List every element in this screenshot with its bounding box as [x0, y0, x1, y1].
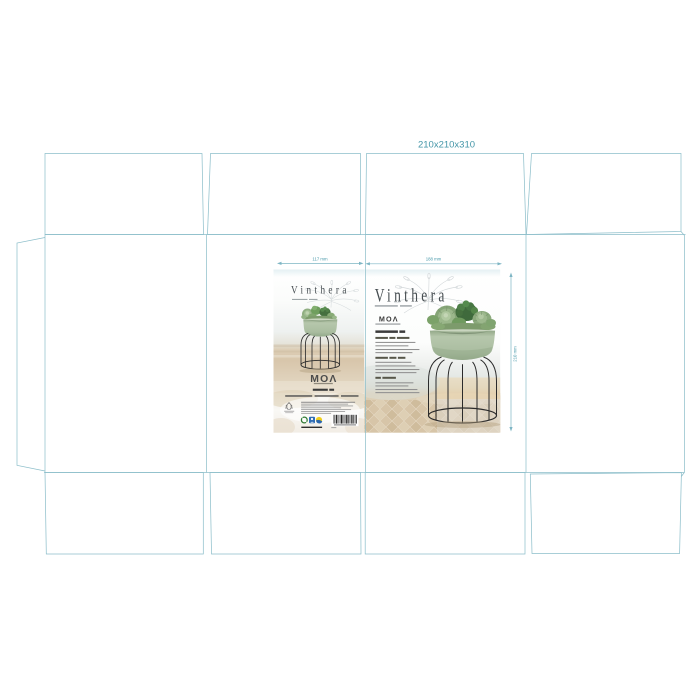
svg-text:188 mm: 188 mm	[426, 256, 442, 261]
svg-text:MOΛ: MOΛ	[379, 315, 398, 324]
svg-text:210x210x310: 210x210x310	[418, 140, 475, 151]
svg-text:210 mm: 210 mm	[513, 346, 518, 362]
svg-text:117 mm: 117 mm	[312, 256, 328, 261]
